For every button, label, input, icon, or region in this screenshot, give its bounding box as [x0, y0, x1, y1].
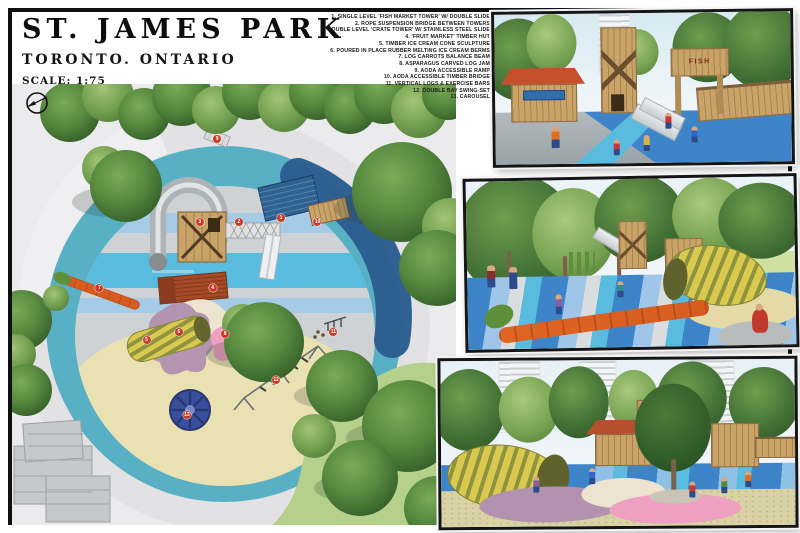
render-photo-towers: FISH [491, 8, 795, 168]
legend-item: 12. DOUBLE BAY SWING-SET [318, 88, 490, 95]
person-figure [556, 294, 562, 314]
market-hut [501, 68, 586, 121]
plan-marker-9: 9 [213, 135, 221, 143]
crate-tower [618, 221, 647, 269]
fish-sign-text: FISH [689, 58, 711, 65]
legend-item: 1. SINGLE LEVEL 'FISH MARKET TOWER' W/ D… [318, 14, 490, 21]
legend-item: 2. ROPE SUSPENSION BRIDGE BETWEEN TOWERS [318, 21, 490, 28]
tower-leg [675, 75, 681, 115]
legend-item: 8. ASPARAGUS CARVED LOG JAM [318, 61, 490, 68]
plan-marker-12: 12 [272, 376, 280, 384]
render-photo-berms [437, 356, 798, 531]
render-photo-carrot-beam [463, 173, 800, 353]
fish-tower [711, 423, 759, 467]
equipment-legend: 1. SINGLE LEVEL 'FISH MARKET TOWER' W/ D… [318, 14, 490, 101]
center-tree [635, 383, 712, 472]
seated-person [752, 309, 768, 333]
page-subtitle: TORONTO. ONTARIO [22, 52, 345, 68]
person-figure [745, 471, 751, 487]
plan-markers: 12345678910111213 [12, 84, 456, 525]
fish-sign: FISH [671, 48, 729, 77]
fish-tower: FISH [671, 48, 730, 115]
plan-marker-3: 3 [196, 218, 204, 226]
person-figure [487, 265, 495, 287]
person-figure [644, 135, 650, 151]
person-figure [689, 481, 695, 497]
legend-item: 5. TIMBER ICE CREAM CONE SCULPTURE [318, 41, 490, 48]
plan-marker-4: 4 [209, 284, 217, 292]
legend-item: 10. AODA ACCESSIBLE TIMBER BRIDGE [318, 74, 490, 81]
legend-item: 13. CAROUSEL [318, 94, 490, 101]
tower-leg [717, 74, 723, 114]
legend-item: 11. VERTICAL LOGS & EXERCISE BARS [318, 81, 490, 88]
presentation-board: ST. JAMES PARK TORONTO. ONTARIO SCALE: 1… [0, 0, 800, 533]
plan-marker-7: 7 [95, 284, 103, 292]
person-figure [589, 468, 595, 484]
vertical-logs [569, 252, 595, 274]
person-figure [614, 139, 620, 155]
legend-item: 6. POURED IN PLACE RUBBER MELTING ICE CR… [318, 48, 490, 55]
tower-opening [611, 94, 624, 111]
page-title: ST. JAMES PARK [22, 14, 345, 45]
plan-marker-10: 10 [313, 218, 321, 226]
title-block: ST. JAMES PARK TORONTO. ONTARIO SCALE: 1… [22, 14, 345, 87]
person-figure [617, 281, 623, 297]
person-figure [551, 126, 559, 148]
bridge [755, 437, 797, 458]
legend-item: 3. DOUBLE LEVEL 'CRATE TOWER' W/ STAINLE… [318, 27, 490, 34]
person-figure [509, 267, 517, 289]
hut-sign [523, 90, 565, 101]
plan-marker-2: 2 [235, 218, 243, 226]
person-figure [691, 126, 697, 142]
site-plan: 12345678910111213 [12, 84, 456, 525]
plan-marker-8: 8 [221, 330, 229, 338]
person-figure [533, 477, 539, 493]
plan-marker-6: 6 [175, 328, 183, 336]
scale-label: SCALE: 1:75 [22, 75, 345, 87]
plan-marker-1: 1 [277, 214, 285, 222]
person-figure [721, 477, 727, 493]
legend-item: 4. 'FRUIT MARKET' TIMBER HUT [318, 34, 490, 41]
plan-marker-13: 13 [183, 411, 191, 419]
person-figure [665, 113, 671, 129]
legend-item: 9. AODA ACCESSIBLE RAMP [318, 68, 490, 75]
tree [526, 14, 577, 73]
legend-item: 7. LOG CARROTS BALANCE BEAM [318, 54, 490, 61]
north-arrow-icon [24, 90, 50, 116]
person-head [756, 304, 763, 311]
plan-marker-11: 11 [329, 328, 337, 336]
hut-roof [501, 68, 585, 85]
plan-marker-5: 5 [143, 336, 151, 344]
